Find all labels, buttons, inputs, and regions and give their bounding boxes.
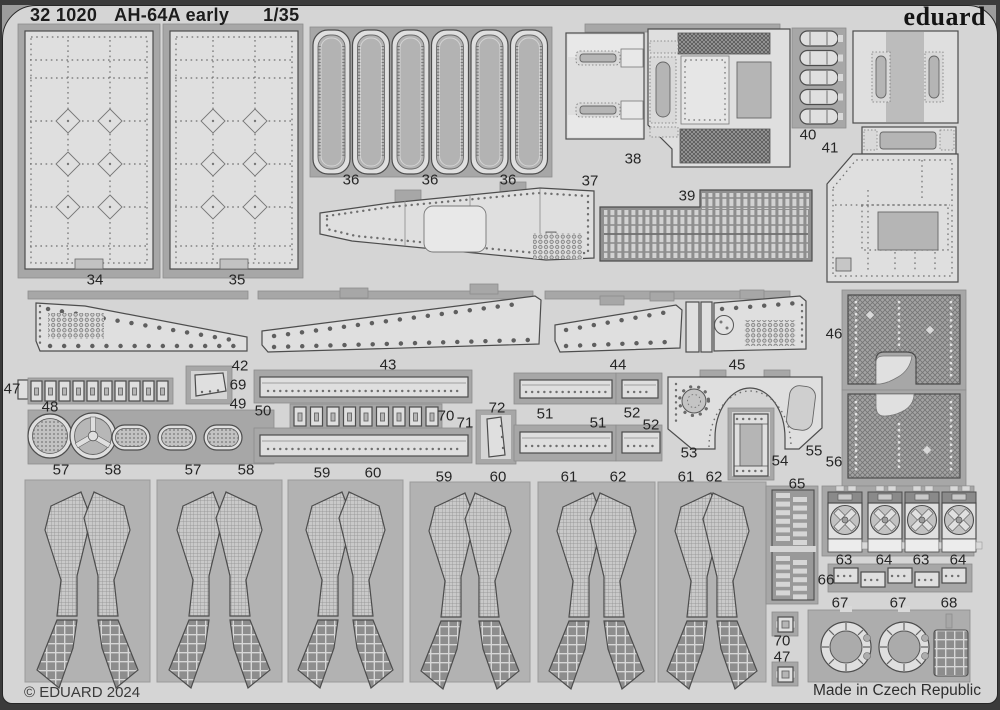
pe-fret-scan: 32 1020 AH-64A early 1/35 eduard 3435363… [0,0,1000,710]
part-label-39: 39 [679,188,696,205]
part-label-60: 60 [365,465,382,482]
part-label-62: 62 [706,469,723,486]
part-label-36: 36 [343,172,360,189]
part-label-58: 58 [105,462,122,479]
part-label-51: 51 [537,406,554,423]
part-label-61: 61 [561,469,578,486]
part-label-65: 65 [789,476,806,493]
part-label-52: 52 [643,417,660,434]
part-label-51: 51 [590,415,607,432]
part-label-49: 49 [230,396,247,413]
part-label-53: 53 [681,445,698,462]
part-label-40: 40 [800,127,817,144]
part-label-71: 71 [457,415,474,432]
part-label-70: 70 [774,633,791,650]
part-label-50: 50 [255,403,272,420]
part-label-43: 43 [380,357,397,374]
part-label-47: 47 [4,381,21,398]
part-label-59: 59 [436,469,453,486]
part-label-63: 63 [913,552,930,569]
part-label-60: 60 [490,469,507,486]
part-label-57: 57 [53,462,70,479]
part-label-64: 64 [876,552,893,569]
part-label-36: 36 [500,172,517,189]
part-label-35: 35 [229,272,246,289]
part-label-44: 44 [610,357,627,374]
part-label-67: 67 [832,595,849,612]
part-label-67: 67 [890,595,907,612]
part-label-59: 59 [314,465,331,482]
part-label-46: 46 [826,326,843,343]
part-label-54: 54 [772,453,789,470]
copyright-text: © EDUARD 2024 [24,684,140,701]
part-label-64: 64 [950,552,967,569]
part-label-41: 41 [822,140,839,157]
part-label-55: 55 [806,443,823,460]
part-label-36: 36 [422,172,439,189]
part-label-45: 45 [729,357,746,374]
part-label-52: 52 [624,405,641,422]
part-label-37: 37 [582,173,599,190]
part-label-42: 42 [232,358,249,375]
part-label-38: 38 [625,151,642,168]
part-label-48: 48 [42,399,59,416]
part-label-70: 70 [438,408,455,425]
part-label-72: 72 [489,400,506,417]
part-label-56: 56 [826,454,843,471]
part-label-62: 62 [610,469,627,486]
part-label-63: 63 [836,552,853,569]
part-label-69: 69 [230,377,247,394]
part-label-47: 47 [774,649,791,666]
part-label-68: 68 [941,595,958,612]
part-label-66: 66 [818,572,835,589]
part-label-58: 58 [238,462,255,479]
made-in-text: Made in Czech Republic [813,682,981,700]
part-label-34: 34 [87,272,104,289]
part-label-61: 61 [678,469,695,486]
part-label-57: 57 [185,462,202,479]
part-number-labels: 3435363636373839404142434445464748694950… [0,0,1000,710]
